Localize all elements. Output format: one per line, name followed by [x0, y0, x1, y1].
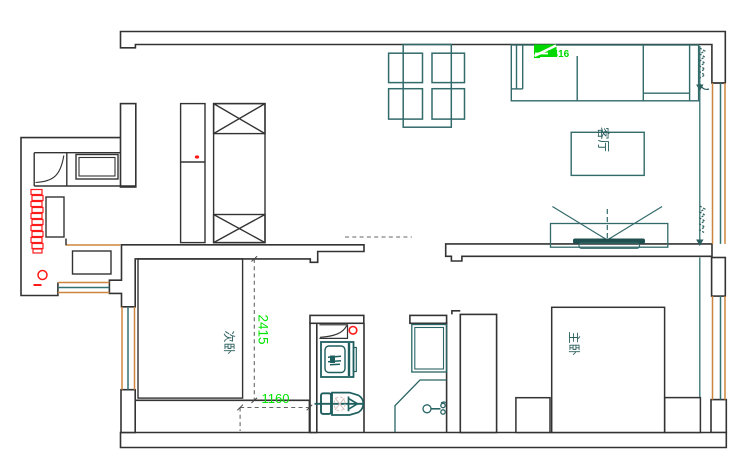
svg-text:次卧: 次卧 [222, 331, 236, 355]
svg-text:1160: 1160 [262, 391, 290, 406]
svg-text:2415: 2415 [256, 315, 271, 345]
svg-text:主卧: 主卧 [567, 332, 581, 356]
svg-text:客厅: 客厅 [596, 127, 611, 152]
svg-text:2416: 2416 [547, 49, 570, 60]
